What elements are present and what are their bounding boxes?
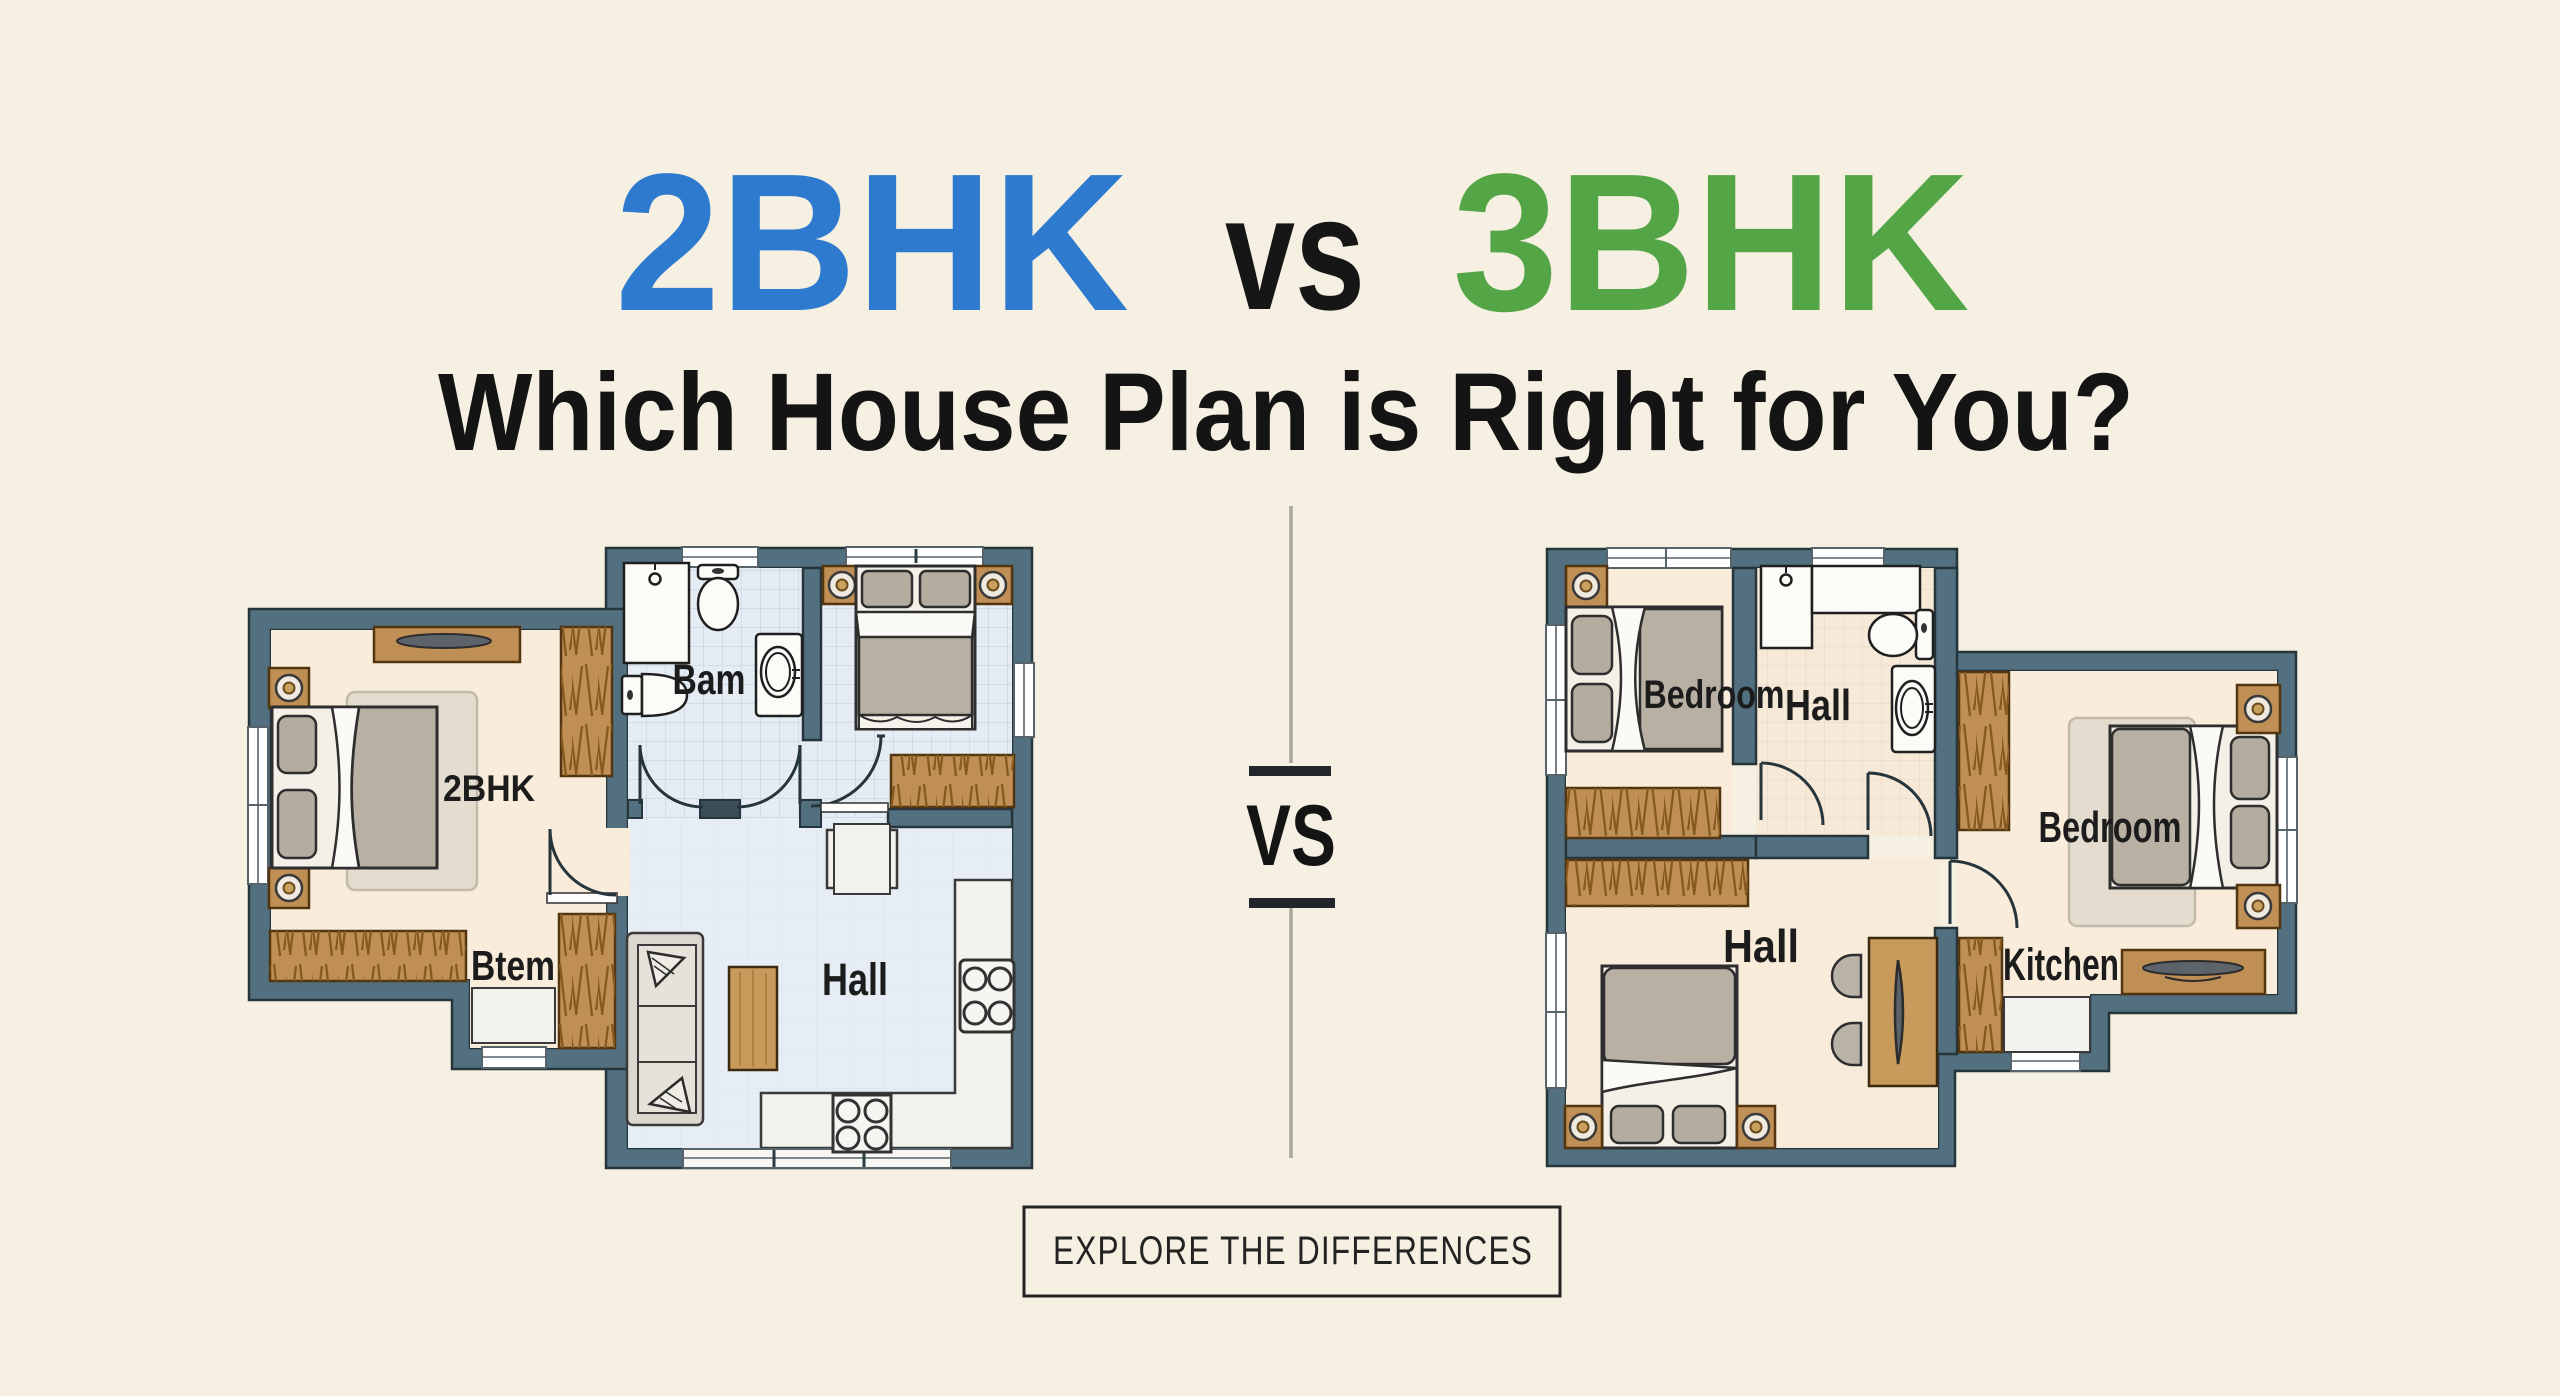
svg-text:Hall: Hall xyxy=(822,954,888,1005)
svg-text:2BHK: 2BHK xyxy=(615,133,1129,352)
svg-text:Bedroom: Bedroom xyxy=(1644,673,1785,717)
svg-text:Which House Plan is Right for: Which House Plan is Right for You? xyxy=(438,351,2134,474)
svg-text:2BHK: 2BHK xyxy=(443,768,535,809)
svg-text:Bedroom: Bedroom xyxy=(2039,803,2182,852)
svg-text:EXPLORE THE DIFFERENCES: EXPLORE THE DIFFERENCES xyxy=(1053,1229,1533,1273)
svg-text:Bam: Bam xyxy=(673,656,746,704)
svg-text:vs: vs xyxy=(1225,163,1365,344)
svg-text:3BHK: 3BHK xyxy=(1453,133,1970,352)
svg-text:Btem: Btem xyxy=(471,942,555,989)
svg-text:Hall: Hall xyxy=(1785,681,1851,730)
svg-text:Kitchen: Kitchen xyxy=(2003,939,2119,990)
svg-text:VS: VS xyxy=(1246,788,1336,884)
svg-text:Hall: Hall xyxy=(1723,920,1799,972)
